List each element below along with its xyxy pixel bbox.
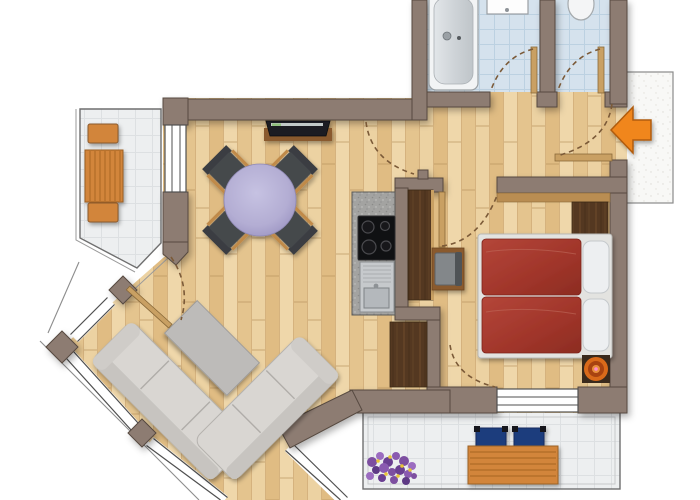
bedroom-wall-shelf xyxy=(497,193,610,202)
dining-table xyxy=(224,164,296,236)
lounger-seat-bottom xyxy=(88,203,118,222)
bathtub-basin xyxy=(434,0,473,84)
wall-bath-south-b xyxy=(537,92,557,107)
wall-bedroom-south-b xyxy=(578,387,627,413)
bathtub-faucet-icon xyxy=(443,32,451,40)
wall-bath-south-a xyxy=(427,92,490,107)
tv-unit xyxy=(264,121,332,141)
double-bed xyxy=(478,234,612,358)
bathtub-drain-icon xyxy=(457,36,461,40)
wall-bath-wc-divider xyxy=(540,0,555,92)
bathroom-door xyxy=(531,47,537,93)
lounger-table-slats xyxy=(90,151,120,201)
wall-doorjamb-stub xyxy=(418,170,428,179)
hall-wardrobe xyxy=(390,322,427,387)
stool-center-dot xyxy=(594,367,598,371)
wash-basin-drain-icon xyxy=(505,8,509,12)
bed-pillow-1 xyxy=(583,241,609,293)
wall-bedroom-north xyxy=(497,177,627,193)
desk-chair-back xyxy=(455,252,462,286)
wall-bedroom-west xyxy=(427,320,440,390)
orange-stool xyxy=(582,355,610,383)
patio-chair-2 xyxy=(514,428,544,448)
wall-bedroom-jog xyxy=(395,307,440,320)
kitchen xyxy=(352,192,395,315)
wall-west-upper xyxy=(163,98,188,125)
lounger-seat-top xyxy=(88,124,118,143)
wall-west-lower xyxy=(163,192,188,242)
wall-east-lower xyxy=(610,160,627,413)
bedroom-door xyxy=(439,192,445,247)
entrance-door xyxy=(555,154,612,161)
wall-living-south xyxy=(350,390,450,413)
patio-chair-1 xyxy=(476,428,506,448)
floor-plan-svg xyxy=(0,0,700,500)
bed-duvet-2 xyxy=(482,297,581,353)
bedroom-window xyxy=(497,389,578,412)
sink-faucet-icon xyxy=(374,284,379,289)
west-balcony-lounger xyxy=(85,124,123,222)
lounger-table xyxy=(85,150,123,202)
wall-east-upper xyxy=(610,0,627,104)
bedroom-wardrobe xyxy=(408,190,433,300)
wall-bath-west xyxy=(412,0,427,120)
bed-pillow-2 xyxy=(583,299,609,351)
tv-screen-green-icon xyxy=(272,124,281,126)
sink-basin xyxy=(364,288,389,308)
bedroom-desk-chair xyxy=(432,248,464,290)
living-west-window xyxy=(165,125,186,192)
bed-duvet-1 xyxy=(482,239,581,295)
wall-kitchen-back xyxy=(395,188,408,307)
wc-door xyxy=(598,47,604,93)
floor-plan xyxy=(0,0,700,500)
desk-chair xyxy=(435,253,457,285)
wall-living-north xyxy=(175,99,427,120)
